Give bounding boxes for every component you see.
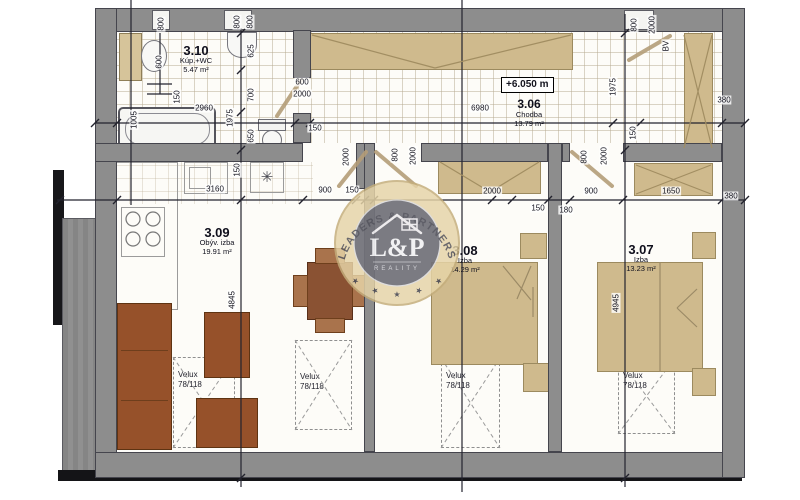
dimension-label: 625 <box>247 43 256 58</box>
floor-plan: Velux78/118 Velux78/118 Velux78/118 Velu… <box>0 0 800 500</box>
dimension-label: 1975 <box>226 108 235 128</box>
dimension-label: 800 <box>233 14 242 29</box>
dimension-label: 1005 <box>130 110 139 130</box>
dimension-label: 2960 <box>194 104 214 113</box>
dimension-label: 800 <box>580 149 589 164</box>
room-label-309: 3.09 Obýv. izba 19.91 m² <box>200 226 235 256</box>
dimension-label: 800 <box>391 147 400 162</box>
dimension-label: 800 <box>630 17 639 32</box>
dimension-label: 150 <box>233 162 242 177</box>
dimension-label: 900 <box>583 187 598 196</box>
dimension-label: 600 <box>155 54 164 69</box>
level-marker: +6.050 m <box>501 77 554 93</box>
dimension-label: 380 <box>723 192 738 201</box>
dimension-label: 3160 <box>205 185 225 194</box>
dimension-label: 4945 <box>612 293 621 313</box>
dimension-label: 2000 <box>409 146 418 166</box>
room-label-306: 3.06 Chodba 13.79 m² <box>514 98 544 128</box>
room-label-307: 3.07 Izba 13.23 m² <box>626 243 656 273</box>
dimension-label: 1650 <box>661 187 681 196</box>
room-area: 19.91 m² <box>200 248 235 257</box>
dimension-label: 2000 <box>342 147 351 167</box>
dimension-label: 600 <box>294 78 309 87</box>
dimension-label: 1975 <box>609 77 618 97</box>
dimension-label: BV <box>662 40 671 53</box>
dimension-label: 150 <box>173 89 182 104</box>
badge-subtitle: REALITY <box>374 266 420 272</box>
dimension-label: 150 <box>530 204 545 213</box>
room-area: 13.79 m² <box>514 120 544 129</box>
dimension-label: 650 <box>247 128 256 143</box>
dimension-label: 2000 <box>482 187 502 196</box>
room-label-310: 3.10 Kúp.+WC 5.47 m² <box>180 44 212 74</box>
dimension-label: 380 <box>716 96 731 105</box>
dimension-label: 2000 <box>292 90 312 99</box>
dimension-label: 2000 <box>600 146 609 166</box>
bed-pillow-lines <box>503 262 697 372</box>
room-area: 5.47 m² <box>180 66 212 75</box>
dimension-label: 800 <box>157 16 166 31</box>
dimension-label: 4845 <box>228 290 237 310</box>
dimension-label: 150 <box>629 125 638 140</box>
star-icon: ★ <box>393 290 400 299</box>
dimension-label: 700 <box>247 87 256 102</box>
dimension-label: 150 <box>307 124 322 133</box>
dimension-label: 180 <box>558 206 573 215</box>
dimension-label: 6980 <box>470 104 490 113</box>
badge-monogram: L&P <box>370 233 425 262</box>
room-area: 13.23 m² <box>626 265 656 274</box>
dimension-label: 800 <box>246 14 255 29</box>
watermark-badge: LEADERS & PARTNERS ★ ★ ★ ★ ★ L&P REALITY <box>322 168 472 318</box>
dimension-label: 2000 <box>648 15 657 35</box>
